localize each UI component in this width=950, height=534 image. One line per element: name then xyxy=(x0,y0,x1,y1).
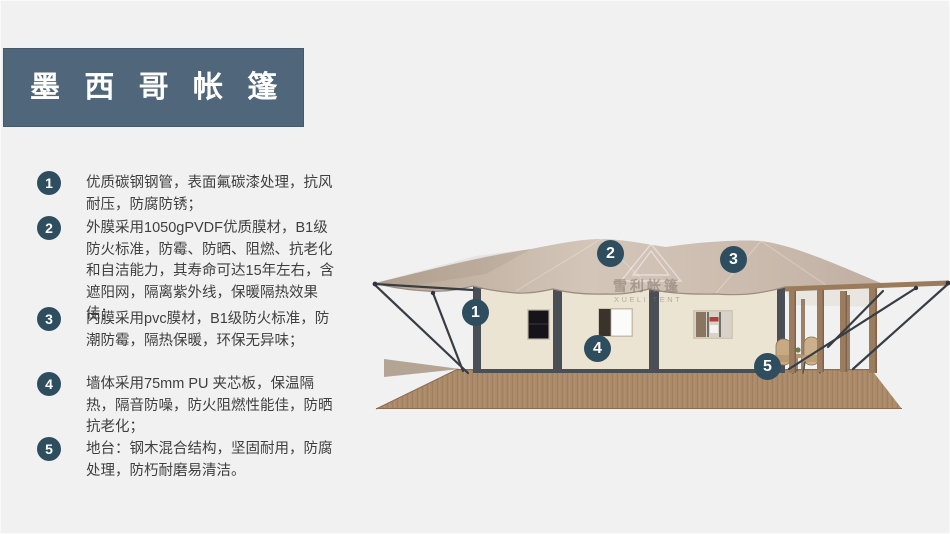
watermark-en: XUELI TENT xyxy=(614,295,682,304)
deck-platform xyxy=(376,369,902,409)
feature-number-badge: 3 xyxy=(37,307,61,331)
feature-number-badge: 5 xyxy=(37,437,61,461)
tent-image: 雪利帐篷 XUELI TENT xyxy=(356,229,950,426)
feature-item-1: 1 优质碳钢钢管，表面氟碳漆处理，抗风耐压，防腐防锈； xyxy=(37,173,347,216)
callout-marker-4: 4 xyxy=(584,335,611,362)
door-middle xyxy=(598,308,633,337)
feature-text: 墙体采用75mm PU 夹芯板，保温隔热，隔音防噪，防火阻燃性能佳，防晒抗老化； xyxy=(86,374,338,439)
feature-text: 内膜采用pvc膜材，B1级防火标准，防潮防霉，隔热保暖，环保无异味； xyxy=(86,309,338,352)
window-left xyxy=(527,309,550,340)
window-right xyxy=(693,310,733,339)
callout-marker-1: 1 xyxy=(462,299,489,326)
feature-text: 优质碳钢钢管，表面氟碳漆处理，抗风耐压，防腐防锈； xyxy=(86,173,338,216)
feature-text: 地台：钢木混合结构，坚固耐用，防腐处理，防朽耐磨易清洁。 xyxy=(86,439,338,482)
tent-illustration: 雪利帐篷 XUELI TENT xyxy=(356,229,950,426)
callout-marker-3: 3 xyxy=(720,246,747,273)
page-title: 墨 西 哥 帐 篷 xyxy=(4,49,303,126)
feature-number-badge: 2 xyxy=(37,216,61,240)
feature-item-5: 5 地台：钢木混合结构，坚固耐用，防腐处理，防朽耐磨易清洁。 xyxy=(37,439,347,482)
callout-marker-2: 2 xyxy=(597,240,624,267)
feature-number-badge: 1 xyxy=(37,171,61,195)
page-title-bar: 墨 西 哥 帐 篷 xyxy=(3,48,304,127)
callout-marker-5: 5 xyxy=(754,353,781,380)
slide-background: 墨 西 哥 帐 篷 1 优质碳钢钢管，表面氟碳漆处理，抗风耐压，防腐防锈； 2 … xyxy=(0,0,950,534)
feature-item-3: 3 内膜采用pvc膜材，B1级防火标准，防潮防霉，隔热保暖，环保无异味； xyxy=(37,309,347,352)
watermark-cn: 雪利帐篷 xyxy=(613,278,681,294)
feature-item-4: 4 墙体采用75mm PU 夹芯板，保温隔热，隔音防噪，防火阻燃性能佳，防晒抗老… xyxy=(37,374,347,439)
feature-number-badge: 4 xyxy=(37,372,61,396)
